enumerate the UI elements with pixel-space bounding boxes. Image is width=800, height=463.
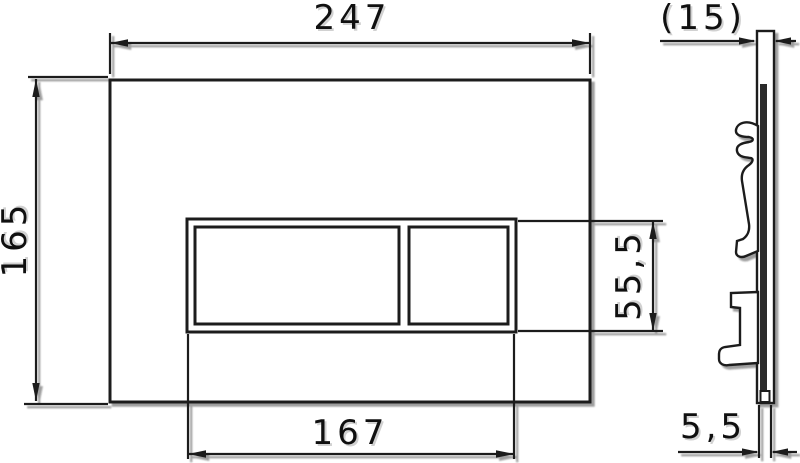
dim-plate-height-lines	[24, 77, 108, 404]
upper-mounting-clip	[736, 122, 758, 257]
button-area-height-label: 55,5	[612, 229, 646, 321]
arrowhead-left-icon	[110, 39, 128, 47]
dim-plate-width	[110, 33, 590, 74]
plate-width-label: 247	[314, 1, 391, 35]
side-plate-core	[760, 84, 767, 396]
large-flush-button	[195, 227, 399, 324]
arrowhead-right-icon	[739, 37, 756, 44]
small-flush-button	[409, 227, 508, 324]
plate-height-label: 165	[0, 201, 32, 278]
arrowhead-left-icon	[774, 37, 791, 44]
arrowhead-up-icon	[649, 221, 656, 239]
protrusion-label: 5,5	[680, 410, 746, 444]
button-area-width-label: 167	[312, 416, 389, 450]
arrowhead-up-icon	[32, 79, 39, 97]
arrowhead-down-icon	[32, 383, 39, 401]
depth-label: (15)	[660, 1, 746, 35]
side-bottom-cap	[761, 391, 770, 402]
arrowhead-right-icon	[742, 448, 759, 455]
arrowhead-right-icon	[572, 39, 590, 47]
side-view-profile	[719, 31, 774, 403]
arrowhead-right-icon	[496, 450, 514, 458]
flush-plate-technical-drawing: 247 165 55,5 167 (15) 5,5	[0, 0, 800, 463]
lower-mounting-clip	[719, 292, 758, 365]
arrowhead-down-icon	[649, 313, 656, 331]
dim-plate-width-lines	[110, 33, 590, 74]
arrowhead-left-icon	[771, 448, 788, 455]
dim-depth	[660, 37, 796, 44]
arrowhead-left-icon	[188, 450, 206, 458]
dim-plate-height	[24, 77, 108, 404]
drawing-linework	[0, 0, 800, 463]
